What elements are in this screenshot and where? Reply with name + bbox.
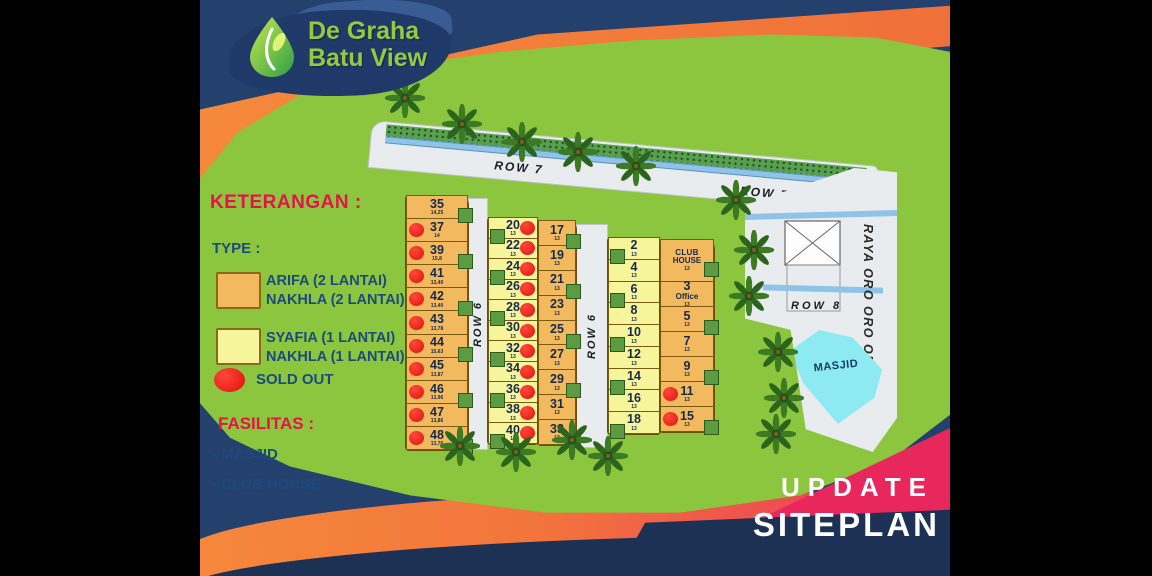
sold-out-icon	[214, 368, 245, 392]
house-footprint	[490, 311, 505, 326]
lot-size: 13,86	[431, 419, 444, 424]
house-footprint	[704, 262, 719, 277]
lot-size: 13,87	[431, 373, 444, 378]
lot-10: 1013	[608, 324, 660, 347]
palm-tree-icon	[442, 104, 482, 144]
lot-size: 13	[554, 262, 560, 267]
house-footprint	[610, 380, 625, 395]
lot-46: 4613,96	[406, 380, 468, 404]
sold-out-marker	[409, 339, 424, 353]
lot-25: 2513	[538, 320, 576, 346]
lot-number: 10	[627, 326, 641, 339]
sold-out-marker	[409, 385, 424, 399]
sold-out-marker	[520, 385, 535, 399]
house-footprint	[610, 337, 625, 352]
road-row6-left: ROW 6	[468, 198, 488, 450]
lot-number: 38	[506, 403, 520, 416]
sold-out-marker	[520, 221, 535, 235]
sold-out-marker	[409, 408, 424, 422]
lot-number: 21	[550, 273, 564, 286]
type-arifa-label: ARIFA (2 LANTAI) NAKHLA (2 LANTAI)	[266, 272, 405, 310]
lot-number: 27	[550, 348, 564, 361]
strip-block-right-west: 21341361381310131213141316131813	[608, 238, 660, 434]
lot-number: 22	[506, 239, 520, 252]
lot-14: 1413	[608, 368, 660, 391]
type-line: NAKHLA (2 LANTAI)	[266, 291, 405, 310]
lot-size: 13	[631, 274, 637, 279]
lot-number: 41	[430, 267, 444, 280]
house-footprint	[490, 393, 505, 408]
lot-number: 42	[430, 290, 444, 303]
lot-18: 1813	[608, 411, 660, 434]
sold-out-marker	[409, 316, 424, 330]
sold-out-marker	[520, 241, 535, 255]
type-line: NAKHLA (1 LANTAI)	[266, 348, 405, 367]
lot-size: 13	[631, 318, 637, 323]
lot-number: 3	[684, 280, 691, 293]
lot-number: 26	[506, 280, 520, 293]
lot-32: 3213	[488, 340, 538, 362]
palm-tree-icon	[758, 332, 798, 372]
strip-block-mid-east: 171319132113231325132713291331133313	[538, 221, 576, 445]
lot-size: 13	[510, 273, 516, 278]
house-footprint	[458, 301, 473, 316]
lot-35: 3514,25	[406, 195, 468, 219]
legend-type-heading: TYPE :	[212, 240, 260, 257]
lot-size: 13	[554, 337, 560, 342]
road-label-main: RAYA ORO ORO OMBO	[861, 224, 875, 439]
palm-tree-icon	[440, 426, 480, 466]
palm-tree-icon	[734, 230, 774, 270]
swatch-syafia-nakhla1	[216, 328, 261, 365]
palm-tree-icon	[716, 180, 756, 220]
house-footprint	[610, 293, 625, 308]
lot-size: 13	[554, 287, 560, 292]
siteplan-poster: ROW 7 ROW 7 ROW 6 ROW 6 ROW 8 RAYA ORO	[0, 0, 1152, 576]
road-label-row6-right: ROW 6	[586, 313, 598, 359]
road-label-row6-left: ROW 6	[472, 301, 484, 347]
lot-number: 7	[684, 335, 691, 348]
lot-3: 3Office13	[660, 281, 714, 307]
palm-tree-icon	[764, 378, 804, 418]
sold-out-marker	[409, 223, 424, 237]
lot-number: 30	[506, 321, 520, 334]
lot-number: 19	[550, 249, 564, 262]
type-line: ARIFA (2 LANTAI)	[266, 272, 405, 291]
house-footprint	[704, 370, 719, 385]
sold-out-marker	[409, 269, 424, 283]
palm-tree-icon	[729, 276, 769, 316]
lot-size: 13	[510, 396, 516, 401]
lot-size: 13,40	[431, 281, 444, 286]
palm-tree-icon	[558, 132, 598, 172]
sold-out-marker	[409, 431, 424, 445]
lot-size: 13	[510, 376, 516, 381]
lot-number: 20	[506, 219, 520, 232]
palm-tree-icon	[502, 122, 542, 162]
palm-tree-icon	[496, 432, 536, 472]
lot-number: 36	[506, 383, 520, 396]
fasilitas-heading: FASILITAS :	[218, 414, 314, 434]
lot-number: 45	[430, 359, 444, 372]
strip-block-left: 3514,2537143915,84113,404213,404313,7844…	[406, 196, 468, 450]
lot-number: 4	[631, 261, 638, 274]
sold-out-marker	[409, 362, 424, 376]
lot-number: 12	[627, 348, 641, 361]
house-footprint	[566, 334, 581, 349]
lot-24: 2413	[488, 258, 538, 280]
lot-number: 14	[627, 370, 641, 383]
lot-number: 9	[684, 360, 691, 373]
lot-21: 2113	[538, 270, 576, 296]
lot-2: 213	[608, 237, 660, 260]
lot-number: 11	[680, 385, 693, 398]
lot-size: 13	[684, 423, 690, 428]
lot-number: 43	[430, 313, 444, 326]
lot-number: 2	[631, 239, 638, 252]
lot-number: 29	[550, 373, 564, 386]
lot-size: 15,8	[432, 257, 442, 262]
footer-siteplan-label: SITEPLAN	[753, 506, 940, 544]
lot-number: 28	[506, 301, 520, 314]
lot-size: 13,96	[431, 396, 444, 401]
lot-number: 44	[430, 336, 444, 349]
house-footprint	[704, 420, 719, 435]
house-footprint	[490, 352, 505, 367]
sold-out-marker	[409, 292, 424, 306]
house-footprint	[458, 208, 473, 223]
house-footprint	[490, 229, 505, 244]
masjid-label: MASJID	[813, 357, 859, 374]
house-footprint	[566, 383, 581, 398]
lot-36: 3613	[488, 381, 538, 403]
lot-size: 15,63	[431, 350, 444, 355]
lot-number: 23	[550, 298, 564, 311]
sold-out-marker	[520, 262, 535, 276]
lot-size: 13	[684, 323, 690, 328]
lot-size: 13	[510, 335, 516, 340]
lot-number: 24	[506, 260, 520, 273]
lot-size: 13	[510, 253, 516, 258]
lot-size: 13,40	[431, 304, 444, 309]
lot-15: 1513	[660, 406, 714, 432]
lot-6: 613	[608, 281, 660, 304]
sold-out-marker	[520, 303, 535, 317]
house-footprint	[458, 254, 473, 269]
fasilitas-masjid: - MASJID	[212, 446, 278, 463]
lot-42: 4213,40	[406, 287, 468, 311]
lot-size: 13	[554, 362, 560, 367]
swatch-arifa-nakhla2	[216, 272, 261, 309]
lot-number: 31	[550, 398, 564, 411]
palm-tree-icon	[616, 146, 656, 186]
palm-tree-icon	[588, 436, 628, 476]
lot-number: 17	[550, 224, 564, 237]
lot-number: 47	[430, 406, 444, 419]
lot-number: 37	[430, 221, 444, 234]
lot-size: 13	[684, 267, 690, 272]
lot-number: 46	[430, 383, 444, 396]
lot-size: 13	[554, 237, 560, 242]
lot-size: 13	[510, 314, 516, 319]
logo: De Graha Batu View	[220, 0, 470, 110]
logo-title-line2: Batu View	[308, 45, 427, 72]
lot-size: 13	[510, 417, 516, 422]
lot-17: 1713	[538, 220, 576, 246]
sold-out-marker	[520, 324, 535, 338]
water-channel-crossing	[745, 210, 897, 220]
lot-label: Office	[676, 293, 699, 302]
sold-out-label: SOLD OUT	[256, 371, 334, 388]
lot-size: 13	[631, 427, 637, 432]
lot-20: 2013	[488, 217, 538, 239]
house-footprint	[458, 393, 473, 408]
logo-title: De Graha Batu View	[308, 18, 427, 72]
lot-size: 13	[510, 294, 516, 299]
lot-size: 13	[554, 411, 560, 416]
lot-29: 2913	[538, 369, 576, 395]
lot-number: 35	[430, 198, 444, 211]
house-footprint	[458, 347, 473, 362]
type-syafia-label: SYAFIA (1 LANTAI) NAKHLA (1 LANTAI)	[266, 329, 405, 367]
lot-44: 4415,63	[406, 334, 468, 358]
sold-out-marker	[663, 412, 678, 426]
lot-39: 3915,8	[406, 241, 468, 265]
house-footprint	[490, 270, 505, 285]
lot-size: 14,25	[431, 211, 444, 216]
lot-number: 6	[631, 283, 638, 296]
lot-9: 913	[660, 356, 714, 382]
lot-number: 32	[506, 342, 520, 355]
sold-out-marker	[520, 344, 535, 358]
lot-5: 513	[660, 306, 714, 332]
lot-label: HOUSE	[673, 257, 701, 266]
lot-size: 13	[631, 340, 637, 345]
lot-size: 13	[631, 405, 637, 410]
lot-size: 13,78	[431, 327, 444, 332]
legend-heading: KETERANGAN :	[210, 192, 362, 214]
lot-number: 18	[627, 413, 641, 426]
lot-number: 25	[550, 323, 564, 336]
lot-size: 13	[684, 373, 690, 378]
strip-block-right-east: CLUBHOUSE133Office1351371391311131513	[660, 240, 714, 432]
lot-size: 13	[631, 253, 637, 258]
lot-size: 13	[631, 296, 637, 301]
house-footprint	[566, 284, 581, 299]
type-line: SYAFIA (1 LANTAI)	[266, 329, 405, 348]
lot-club: CLUBHOUSE13	[660, 239, 714, 282]
lot-number: 34	[506, 362, 520, 375]
lot-number: 5	[684, 310, 691, 323]
strip-block-mid-west: 2013221324132613281330133213341336133813…	[488, 218, 538, 444]
sold-out-marker	[520, 406, 535, 420]
road-label-row8: ROW 8	[791, 300, 842, 312]
lot-size: 13	[510, 232, 516, 237]
lot-size: 13	[684, 348, 690, 353]
lot-size: 13	[631, 362, 637, 367]
house-footprint	[704, 320, 719, 335]
lot-size: 14	[434, 234, 440, 239]
fasilitas-club-house: - CLUB HOUSE	[212, 476, 320, 493]
poster-content: ROW 7 ROW 7 ROW 6 ROW 6 ROW 8 RAYA ORO	[200, 0, 950, 576]
lot-number: 39	[430, 244, 444, 257]
lot-28: 2813	[488, 299, 538, 321]
house-footprint	[610, 249, 625, 264]
sold-out-marker	[520, 282, 535, 296]
sold-out-marker	[520, 365, 535, 379]
footer-update-label: UPDATE	[781, 472, 934, 503]
sold-out-marker	[409, 246, 424, 260]
palm-tree-icon	[552, 420, 592, 460]
lot-number: 8	[631, 304, 638, 317]
lot-number: 15	[680, 410, 694, 423]
lot-size: 13	[684, 398, 690, 403]
lot-size: 13	[510, 355, 516, 360]
leaf-drop-icon	[244, 16, 300, 78]
lot-size: 13	[554, 387, 560, 392]
lot-size: 13	[554, 312, 560, 317]
house-footprint	[566, 234, 581, 249]
logo-title-line1: De Graha	[308, 18, 427, 45]
sold-out-marker	[663, 387, 678, 401]
palm-tree-icon	[756, 414, 796, 454]
lot-number: 16	[627, 392, 641, 405]
lot-size: 13	[631, 383, 637, 388]
